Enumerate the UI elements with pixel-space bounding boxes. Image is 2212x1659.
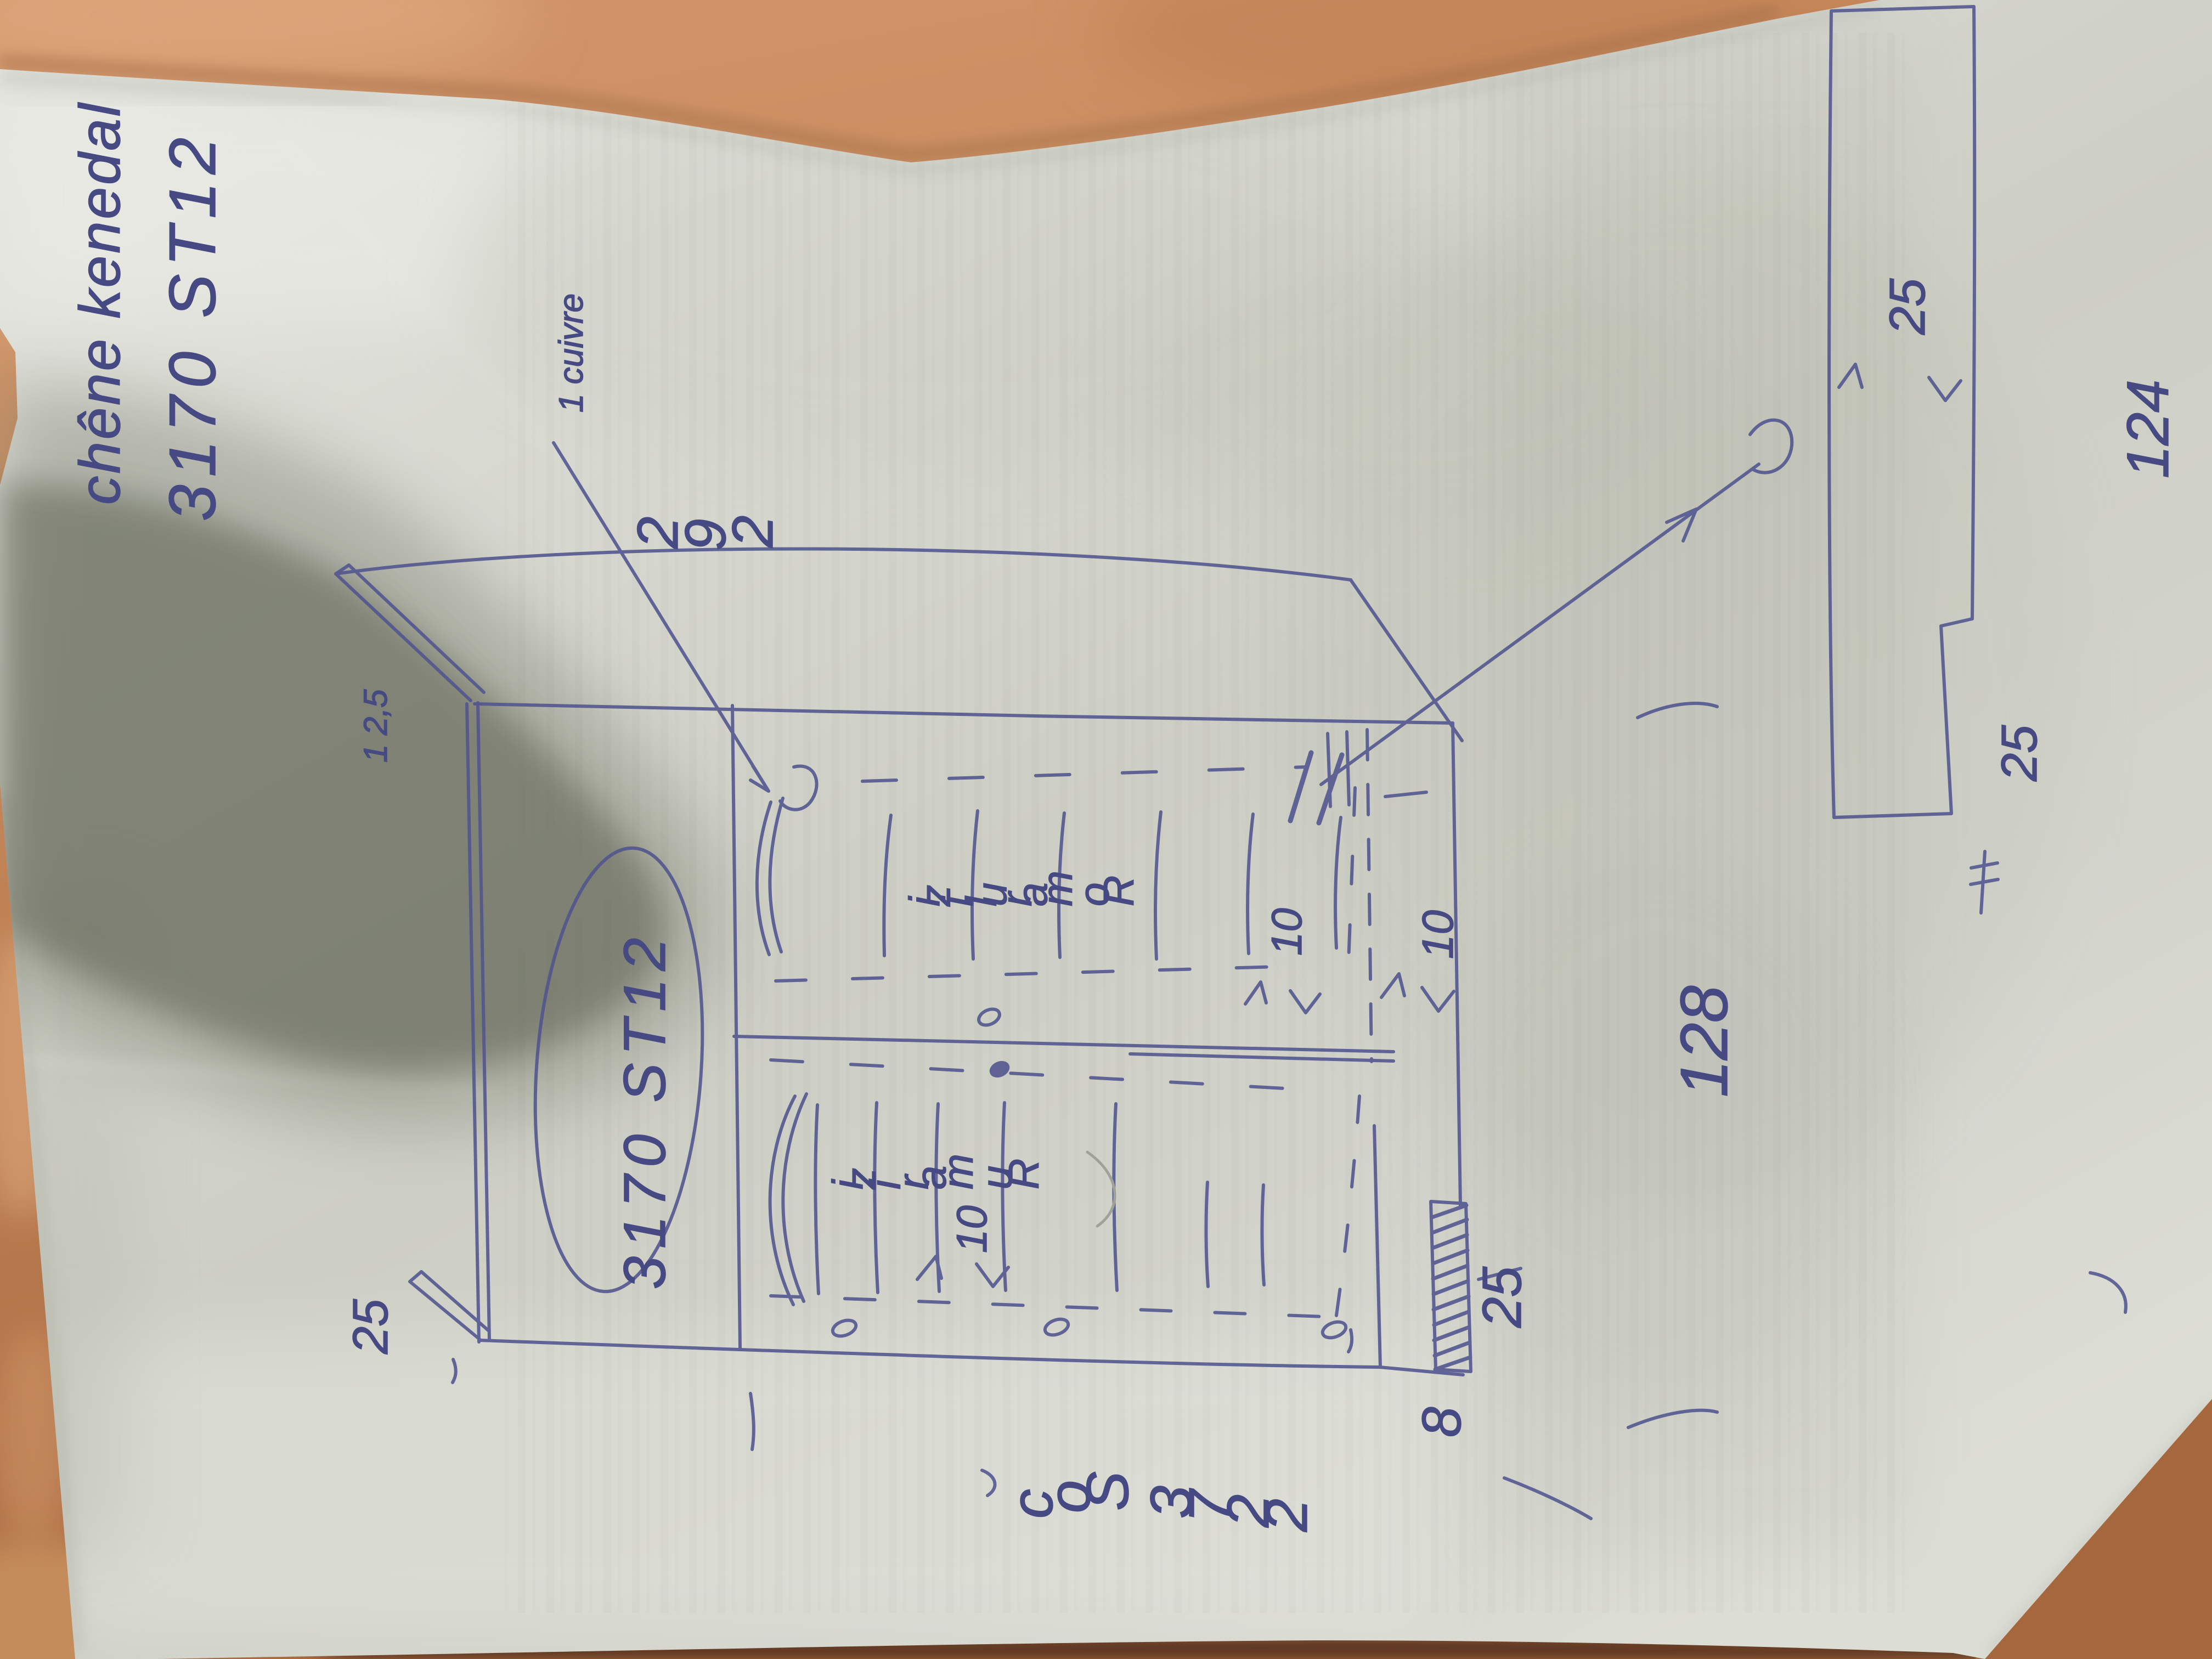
svg-text:1 cuivre: 1 cuivre	[552, 294, 590, 413]
svg-text:124: 124	[2114, 380, 2181, 478]
svg-text:2: 2	[1253, 1499, 1319, 1532]
svg-text:10: 10	[1413, 910, 1462, 959]
svg-text:2: 2	[721, 516, 785, 548]
svg-text:128: 128	[1667, 985, 1741, 1097]
svg-text:3170 ST12: 3170 ST12	[611, 930, 678, 1289]
svg-text:chêne kenedal: chêne kenedal	[68, 101, 132, 505]
svg-text:10: 10	[1262, 908, 1311, 956]
svg-text:S: S	[1074, 1471, 1141, 1511]
svg-text:25: 25	[343, 1299, 398, 1355]
svg-text:25: 25	[1471, 1266, 1533, 1328]
svg-text:10: 10	[947, 1205, 996, 1253]
svg-text:25: 25	[1880, 278, 1936, 335]
svg-text:8: 8	[1411, 1407, 1472, 1437]
svg-text:1 2,5: 1 2,5	[357, 689, 394, 763]
svg-text:3170 ST12: 3170 ST12	[156, 130, 229, 521]
svg-text:25: 25	[1991, 725, 2047, 782]
